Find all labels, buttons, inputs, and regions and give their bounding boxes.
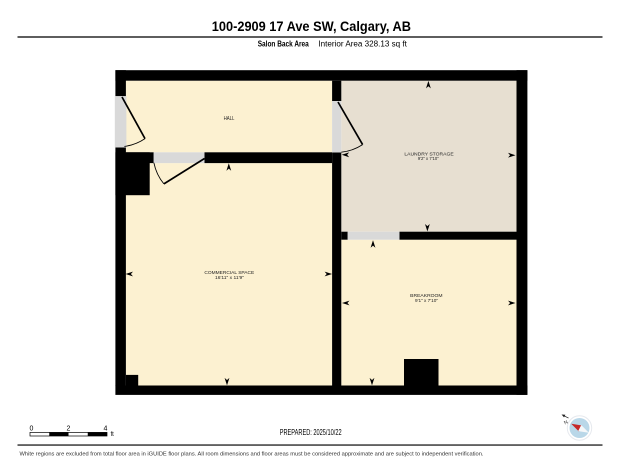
- svg-text:ft: ft: [111, 432, 115, 438]
- svg-text:4: 4: [104, 425, 108, 432]
- svg-text:100-2909 17 Ave SW, Calgary, A: 100-2909 17 Ave SW, Calgary, AB: [212, 19, 411, 34]
- svg-text:9'1" x 7'10": 9'1" x 7'10": [415, 298, 438, 303]
- svg-text:PREPARED: 2025/10/22: PREPARED: 2025/10/22: [280, 428, 342, 437]
- svg-text:9'2" x 7'10": 9'2" x 7'10": [418, 156, 439, 161]
- svg-text:HALL: HALL: [224, 116, 235, 122]
- svg-text:Salon Back Area: Salon Back Area: [258, 40, 310, 49]
- svg-text:Interior Area 328.13 sq ft: Interior Area 328.13 sq ft: [318, 40, 407, 49]
- svg-text:16'11" x 11'9": 16'11" x 11'9": [215, 275, 244, 280]
- svg-text:0: 0: [30, 425, 34, 432]
- svg-text:White regions are excluded fro: White regions are excluded from total fl…: [20, 452, 484, 458]
- svg-text:2: 2: [67, 425, 71, 432]
